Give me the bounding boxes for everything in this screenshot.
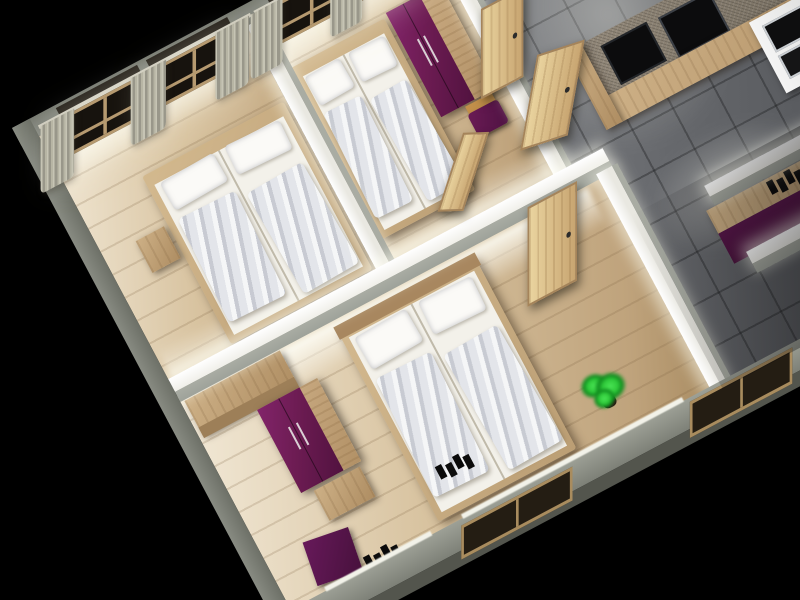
window-mullion	[740, 377, 743, 408]
window-mullion	[103, 97, 107, 135]
floorplan-render-canvas	[0, 0, 800, 600]
wardrobe-handle	[417, 38, 433, 66]
door-handle	[513, 31, 517, 39]
window-mullion	[516, 499, 519, 528]
door-handle	[564, 86, 570, 93]
door-handle	[566, 230, 570, 238]
window-mullion	[193, 49, 197, 87]
apartment-building	[12, 0, 800, 600]
